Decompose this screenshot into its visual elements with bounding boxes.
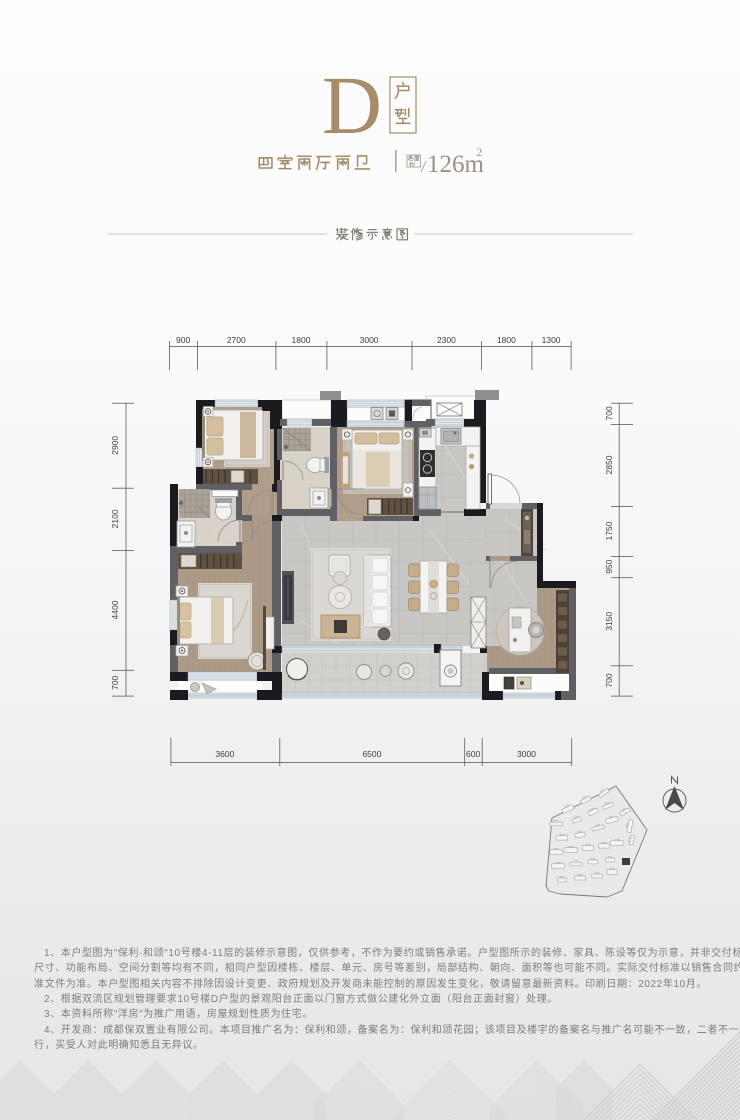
svg-text:3000: 3000 (360, 335, 379, 345)
svg-text:950: 950 (604, 559, 614, 573)
svg-text:2850: 2850 (604, 455, 614, 474)
svg-text:600: 600 (466, 749, 480, 759)
svg-text:3600: 3600 (215, 749, 234, 759)
svg-text:3150: 3150 (604, 612, 614, 631)
svg-text:700: 700 (110, 675, 120, 689)
svg-text:2100: 2100 (110, 509, 120, 528)
svg-text:2900: 2900 (110, 436, 120, 455)
svg-text:4400: 4400 (110, 600, 120, 619)
svg-text:700: 700 (604, 673, 614, 687)
svg-text:6500: 6500 (362, 749, 381, 759)
svg-text:1800: 1800 (292, 335, 311, 345)
svg-text:2: 2 (477, 147, 483, 159)
svg-text:D: D (322, 59, 382, 151)
svg-text:1800: 1800 (497, 335, 516, 345)
svg-text:1750: 1750 (604, 521, 614, 540)
svg-text:2700: 2700 (227, 335, 246, 345)
svg-text:3000: 3000 (517, 749, 536, 759)
svg-text:2300: 2300 (437, 335, 456, 345)
svg-text:1300: 1300 (542, 335, 561, 345)
svg-text:900: 900 (176, 335, 190, 345)
svg-text:700: 700 (604, 406, 614, 420)
